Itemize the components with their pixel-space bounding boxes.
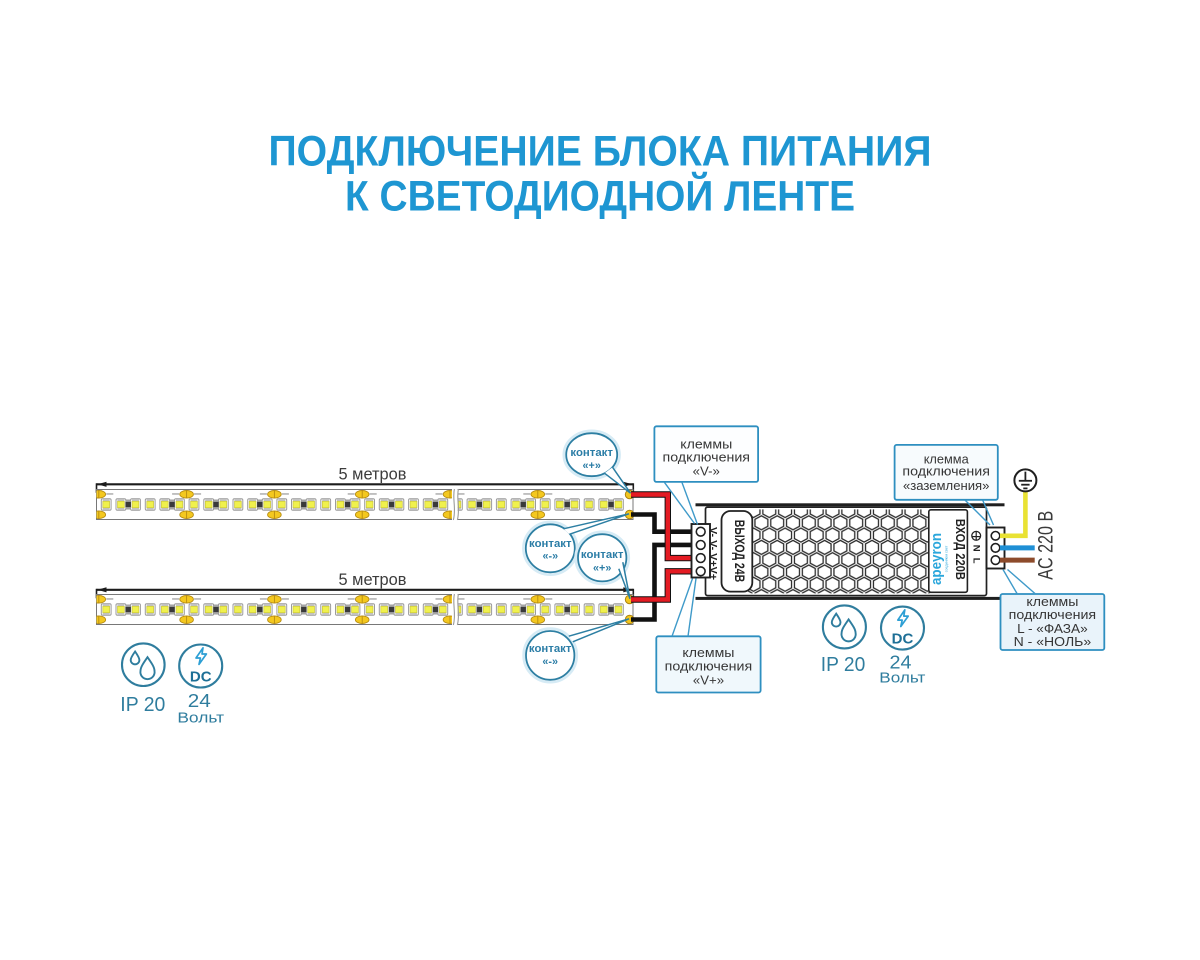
svg-text:ВХОД 220В: ВХОД 220В	[953, 519, 968, 580]
svg-text:Вольт: Вольт	[177, 710, 224, 727]
svg-text:контакт: контакт	[529, 538, 572, 550]
svg-text:IP 20: IP 20	[821, 653, 866, 676]
svg-text:DC: DC	[190, 669, 212, 686]
svg-text:подключения: подключения	[665, 658, 753, 673]
svg-text:N - «НОЛЬ»: N - «НОЛЬ»	[1014, 634, 1092, 649]
svg-text:Вольт: Вольт	[879, 670, 925, 687]
svg-text:«+»: «+»	[583, 460, 601, 472]
svg-text:DC: DC	[892, 631, 914, 648]
svg-text:apeyron: apeyron	[929, 533, 945, 585]
svg-text:«V+»: «V+»	[693, 672, 724, 687]
svg-text:N: N	[970, 545, 981, 552]
svg-text:«-»: «-»	[542, 550, 558, 562]
svg-text:контакт: контакт	[529, 643, 572, 655]
svg-text:5 метров: 5 метров	[339, 465, 407, 483]
svg-text:«-»: «-»	[542, 656, 558, 668]
svg-text:К СВЕТОДИОДНОЙ ЛЕНТЕ: К СВЕТОДИОДНОЙ ЛЕНТЕ	[345, 172, 855, 221]
svg-text:24: 24	[188, 691, 211, 711]
svg-text:IP 20: IP 20	[120, 693, 165, 716]
svg-text:подключения: подключения	[663, 450, 751, 465]
svg-text:контакт: контакт	[570, 447, 613, 459]
svg-text:5 метров: 5 метров	[339, 571, 407, 589]
svg-text:контакт: контакт	[581, 549, 624, 561]
svg-text:V- V- V+V+: V- V- V+V+	[707, 527, 718, 580]
svg-text:подключения: подключения	[902, 464, 990, 479]
svg-text:AC 220 В: AC 220 В	[1034, 511, 1058, 580]
svg-text:«V-»: «V-»	[693, 464, 720, 479]
svg-text:«заземления»: «заземления»	[903, 478, 989, 493]
svg-text:ВЫХОД 24В: ВЫХОД 24В	[732, 520, 747, 583]
svg-text:ПОДКЛЮЧЕНИЕ БЛОКА ПИТАНИЯ: ПОДКЛЮЧЕНИЕ БЛОКА ПИТАНИЯ	[269, 127, 932, 175]
svg-text:L: L	[970, 558, 981, 564]
svg-text:подключения: подключения	[1009, 607, 1097, 622]
svg-text:«+»: «+»	[593, 562, 611, 574]
svg-text:соединяем свет: соединяем свет	[945, 545, 949, 572]
